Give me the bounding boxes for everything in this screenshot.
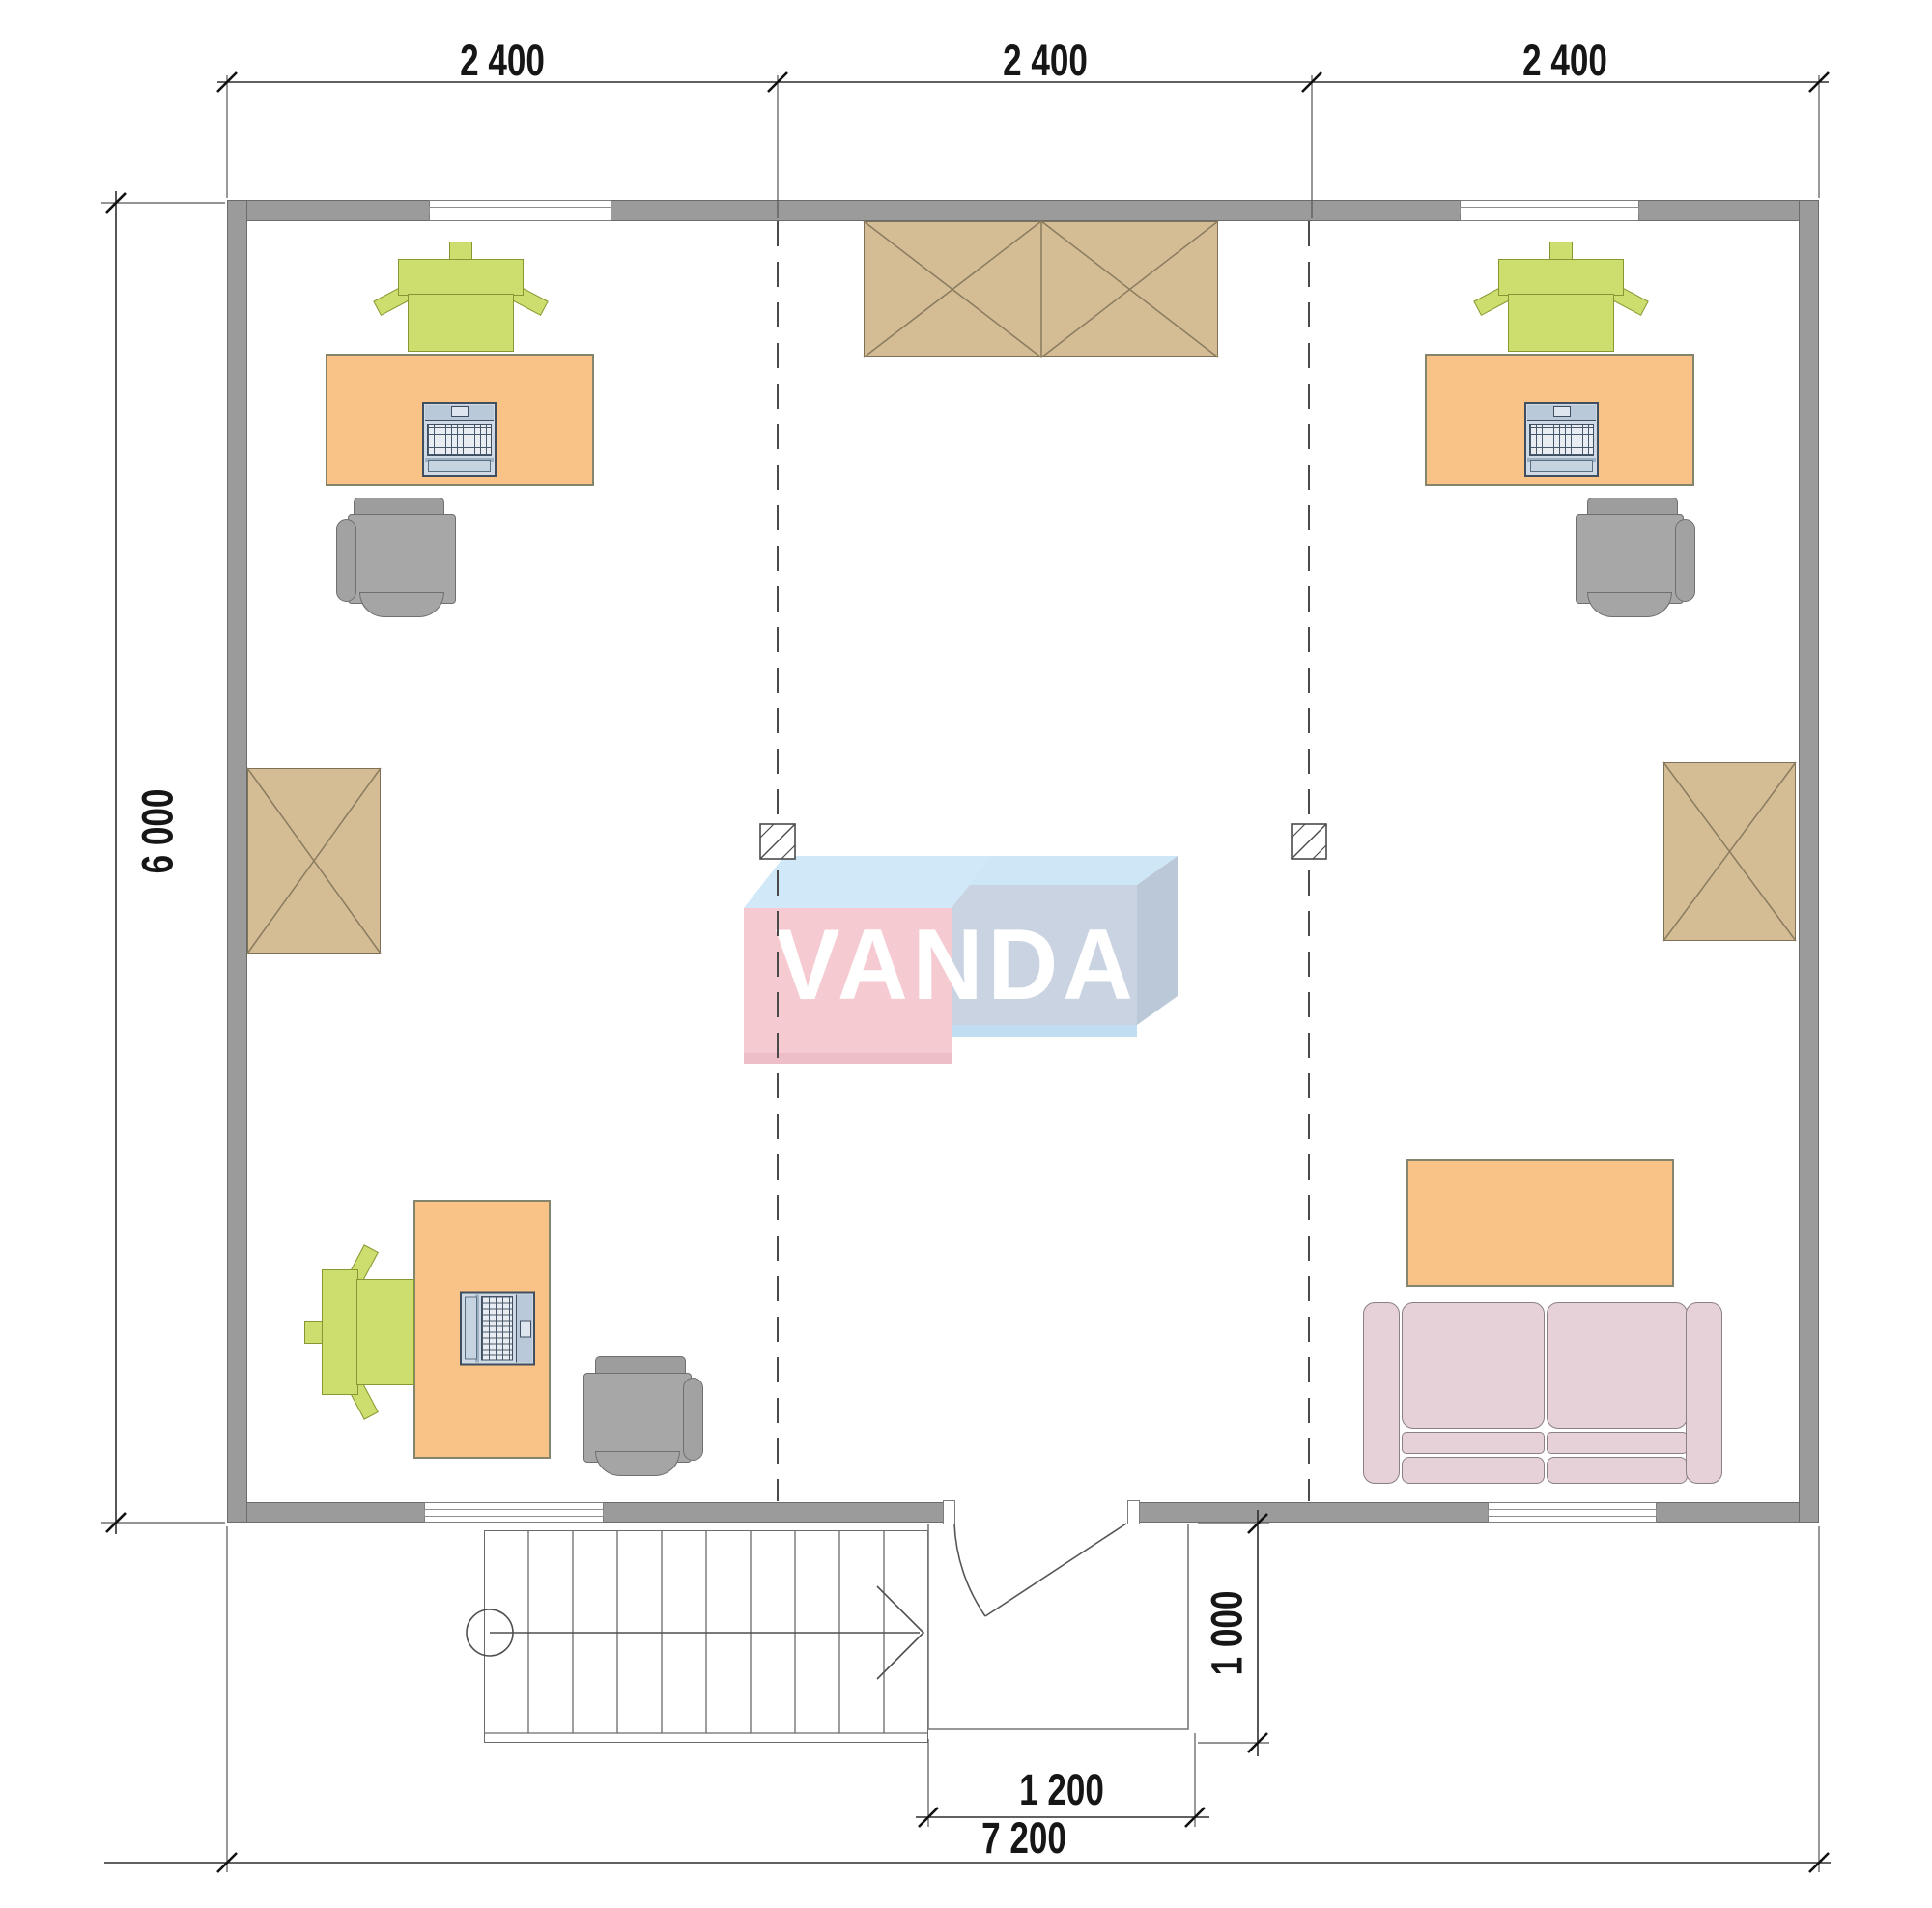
dim-total-width: 7 200: [975, 1816, 1072, 1860]
dim-left-height: 6 000: [136, 767, 180, 896]
dim-top-1: 2 400: [453, 39, 551, 82]
dim-entry-width: 1 200: [1012, 1768, 1110, 1811]
dim-entry-depth: 1 000: [1206, 1569, 1249, 1697]
floor-plan-canvas: 2 400 2 400 2 400 6 000 1 200 1 000 7 20…: [0, 0, 1932, 1908]
vanda-logo-text: VANDA: [753, 904, 1161, 1026]
dim-top-2: 2 400: [996, 39, 1094, 82]
dim-top-3: 2 400: [1516, 39, 1613, 82]
